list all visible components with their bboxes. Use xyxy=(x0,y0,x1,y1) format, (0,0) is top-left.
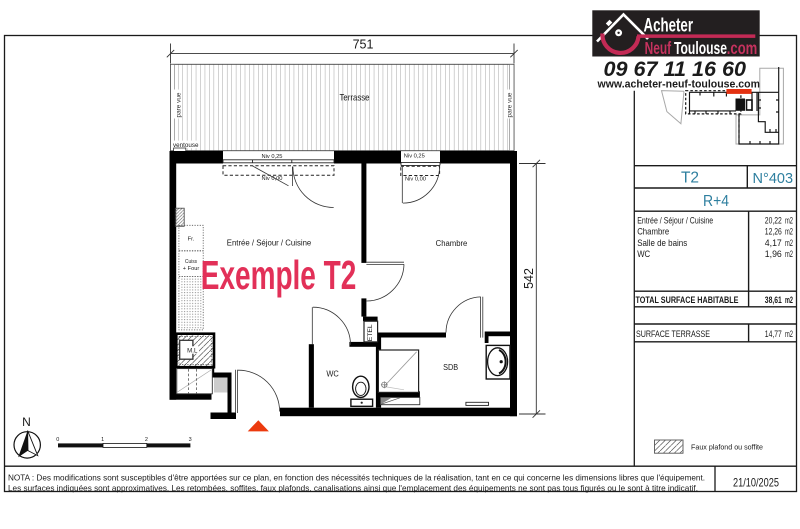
svg-text:m2: m2 xyxy=(785,227,793,237)
svg-text:N°403: N°403 xyxy=(753,170,794,187)
svg-text:WC: WC xyxy=(637,249,651,259)
svg-text:m2: m2 xyxy=(785,238,793,248)
svg-text:09 67 11 16 60: 09 67 11 16 60 xyxy=(604,58,747,81)
svg-text:ETEL: ETEL xyxy=(368,324,374,342)
svg-text:Toulouse: Toulouse xyxy=(674,38,727,58)
svg-text:1: 1 xyxy=(101,437,104,443)
svg-text:T2: T2 xyxy=(681,170,699,187)
svg-text:Neuf: Neuf xyxy=(645,38,672,58)
svg-text:21/10/2025: 21/10/2025 xyxy=(733,476,779,490)
svg-text:R+4: R+4 xyxy=(703,193,729,210)
svg-text:14,77: 14,77 xyxy=(765,329,782,339)
svg-text:542: 542 xyxy=(522,268,536,289)
svg-text:20,22: 20,22 xyxy=(765,215,782,225)
svg-text:m2: m2 xyxy=(785,215,793,225)
svg-text:SURFACE TERRASSE: SURFACE TERRASSE xyxy=(636,329,710,339)
svg-text:WC: WC xyxy=(326,369,339,378)
svg-text:Niv 0,25: Niv 0,25 xyxy=(262,154,283,160)
svg-text:pare vue: pare vue xyxy=(176,92,183,117)
svg-text:m2: m2 xyxy=(785,329,793,339)
svg-text:Entrée / Séjour / Cuisine: Entrée / Séjour / Cuisine xyxy=(637,215,713,225)
svg-text:Fr.: Fr. xyxy=(188,237,195,243)
svg-text:2: 2 xyxy=(145,437,148,443)
svg-text:Niv 0,00: Niv 0,00 xyxy=(262,176,283,182)
svg-text:m2: m2 xyxy=(785,295,793,305)
svg-text:TOTAL SURFACE HABITABLE: TOTAL SURFACE HABITABLE xyxy=(636,295,739,305)
svg-text:m2: m2 xyxy=(785,249,793,259)
svg-text:Cuiss: Cuiss xyxy=(185,259,197,265)
svg-text:1,96: 1,96 xyxy=(765,249,782,259)
svg-text:38,61: 38,61 xyxy=(765,295,782,305)
svg-text:Entrée / Séjour / Cuisine: Entrée / Séjour / Cuisine xyxy=(227,239,312,248)
svg-text:0: 0 xyxy=(56,437,59,443)
svg-text:.com: .com xyxy=(727,38,758,58)
svg-text:SDB: SDB xyxy=(443,363,458,372)
svg-text:N: N xyxy=(22,415,31,429)
svg-text:NOTA : Des modifications sont: NOTA : Des modifications sont susceptibl… xyxy=(8,473,705,482)
svg-text:4,17: 4,17 xyxy=(765,238,782,248)
svg-text:Salle de bains: Salle de bains xyxy=(637,238,688,248)
svg-text:Faux plafond ou soffite: Faux plafond ou soffite xyxy=(691,442,763,451)
svg-text:www.acheter-neuf-toulouse.com: www.acheter-neuf-toulouse.com xyxy=(597,79,760,91)
svg-text:Exemple T2: Exemple T2 xyxy=(201,253,356,298)
svg-text:pare vue: pare vue xyxy=(507,92,514,117)
svg-text:Les surfaces indiquées sont ap: Les surfaces indiquées sont approximativ… xyxy=(8,484,698,493)
svg-text:Chambre: Chambre xyxy=(637,227,669,237)
svg-text:Niv 0,00: Niv 0,00 xyxy=(405,176,426,182)
svg-text:3: 3 xyxy=(189,437,192,443)
svg-text:Chambre: Chambre xyxy=(436,239,468,248)
svg-text:+ Four: + Four xyxy=(183,266,200,272)
svg-text:Terrasse: Terrasse xyxy=(340,92,370,102)
svg-text:M.L: M.L xyxy=(187,347,198,354)
svg-text:Acheter: Acheter xyxy=(644,15,694,36)
svg-text:Niv 0,25: Niv 0,25 xyxy=(404,154,425,160)
svg-text:12,26: 12,26 xyxy=(765,227,782,237)
svg-text:751: 751 xyxy=(353,38,374,52)
